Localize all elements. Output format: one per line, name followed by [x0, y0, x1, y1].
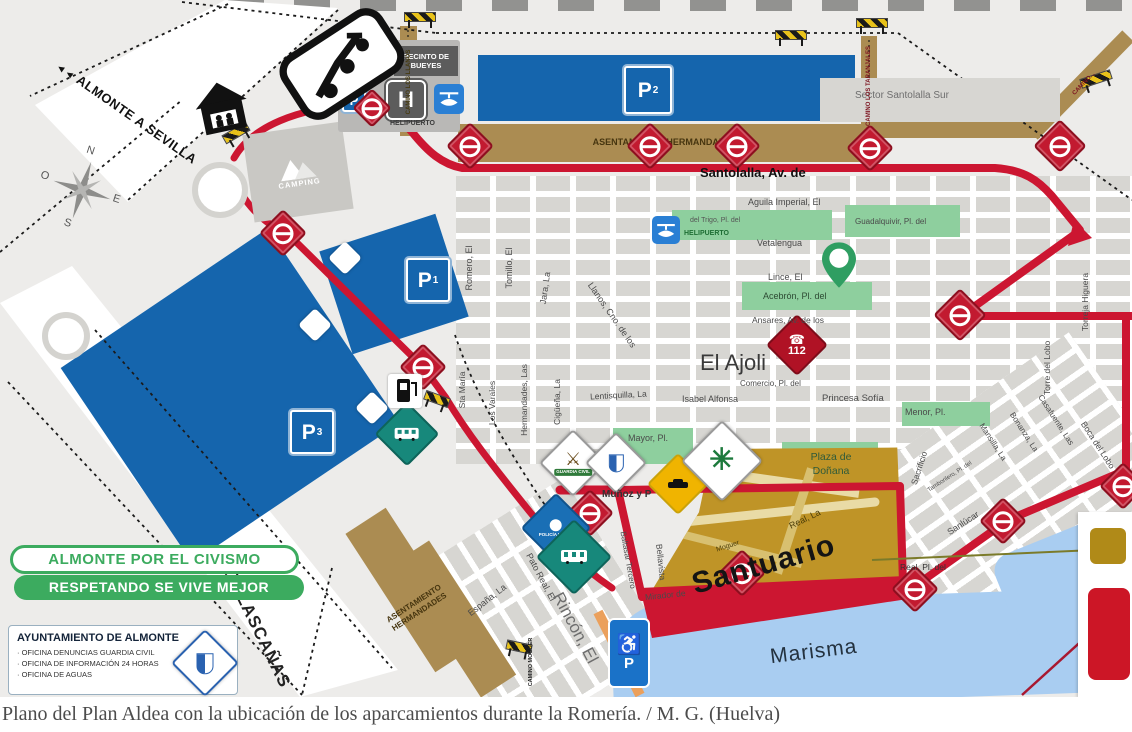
- street-label-lince: Lince, El: [768, 272, 803, 282]
- fuel-station-icon: [388, 374, 422, 408]
- street-label-real-pl: Real, Pl. del: [900, 562, 946, 572]
- camino-taranjales-label: CAMINO LOS TARANJALES: [866, 46, 872, 126]
- camino-moguer-label: CAMINO MOGUER: [528, 638, 534, 687]
- street-label-guadalquivir: Guadalquivir, Pl. del: [855, 217, 926, 226]
- helipuerto-center-label: HELIPUERTO: [684, 230, 729, 237]
- legend-swatch-asentamiento: [1090, 528, 1126, 564]
- street-label-princesa: Princesa Sofía: [822, 393, 884, 404]
- street-label-santolalla: Santolalla, Av. de: [700, 165, 806, 180]
- accessible-parking-sign: ♿ P: [608, 618, 650, 688]
- barrier-icon: [775, 30, 807, 40]
- street-label-vetalengua: Vetalengua: [757, 238, 802, 248]
- helicopter-icon: [436, 89, 462, 109]
- district-label-el-ajoli: El Ajoli: [700, 350, 766, 376]
- street-label-sta-maria: Sta María: [457, 372, 467, 409]
- wheelchair-icon: ♿: [617, 635, 642, 655]
- street-label-torreja: Torreja Higuera: [1080, 273, 1090, 331]
- street-label-ansares: Ansares, Av. de los: [752, 315, 824, 325]
- camino-llanos-label: CAMINO LOS LLANOS: [406, 50, 412, 115]
- parking-sign-p3: P3: [290, 410, 334, 454]
- green-star-icon: ✳: [709, 446, 734, 476]
- street-label-torre-lobo: Torre del Lobo: [1042, 341, 1052, 395]
- helipuerto-sign-center: [652, 216, 680, 244]
- street-label-munoz: Muñoz y P: [602, 489, 651, 500]
- crossed-swords-icon: ⚔: [565, 450, 581, 468]
- street-label-trigo: del Trigo, Pl. del: [690, 217, 740, 224]
- badge-icon: [550, 519, 562, 531]
- helipuerto-top-label: HELIPUERTO: [390, 120, 435, 127]
- article-figure: Marisma ASENTAMIENTO HERMANDADES ASENTAM…: [0, 0, 1132, 732]
- figure-caption: Plano del Plan Aldea con la ubicación de…: [0, 697, 1132, 732]
- street-label-comercio: Comercio, Pl. del: [740, 379, 801, 388]
- barrier-icon: [404, 12, 436, 22]
- shield-icon: [197, 653, 214, 674]
- street-label-varales: Los Varales: [487, 381, 497, 425]
- civismo-banner-line2: RESPETANDO SE VIVE MEJOR: [14, 575, 304, 600]
- camping-area: CAMPING: [242, 121, 353, 222]
- parking-sign-p1: P1: [406, 258, 450, 302]
- bus-icon: [561, 550, 587, 564]
- helipuerto-sign-top: [434, 84, 464, 114]
- roundabout-main: [192, 162, 248, 218]
- street-label-romero: Romero, El: [464, 245, 474, 290]
- helicopter-icon: [654, 221, 678, 240]
- street-label-menor: Menor, Pl.: [905, 407, 946, 417]
- car-icon: [668, 479, 688, 489]
- street-label-acebron: Acebrón, Pl. del: [763, 291, 827, 301]
- street-label-isabel: Isabel Alfonsa: [682, 394, 738, 404]
- street-label-hermandades: Hermandades, Las: [519, 364, 529, 436]
- street-label-mayor: Mayor, Pl.: [628, 433, 668, 443]
- shield-icon: [609, 454, 624, 472]
- roundabout-west: [42, 312, 90, 360]
- rocio-plan-map: Marisma ASENTAMIENTO HERMANDADES ASENTAM…: [0, 0, 1132, 697]
- map-pin-icon: [822, 242, 856, 288]
- guardia-civil-label: GUARDIA CIVIL: [554, 469, 592, 476]
- shelter-house-icon: [191, 77, 253, 139]
- street-label-aguila: Aguila Imperial, El: [748, 197, 821, 207]
- plaza-donana-label: Plaza de Doñana: [800, 450, 862, 478]
- parking-sign-p2: P2: [624, 66, 672, 114]
- street-label-tomillo: Tomillo, El: [504, 247, 514, 288]
- street-label-ciguena: Cigüeña, La: [552, 379, 562, 425]
- legend-swatch-restricted: [1088, 588, 1130, 680]
- barrier-icon: [856, 18, 888, 28]
- bus-icon: [395, 428, 419, 441]
- civismo-banner-line1: ALMONTE POR EL CIVISMO: [10, 545, 299, 574]
- legend-panel: [1078, 512, 1132, 697]
